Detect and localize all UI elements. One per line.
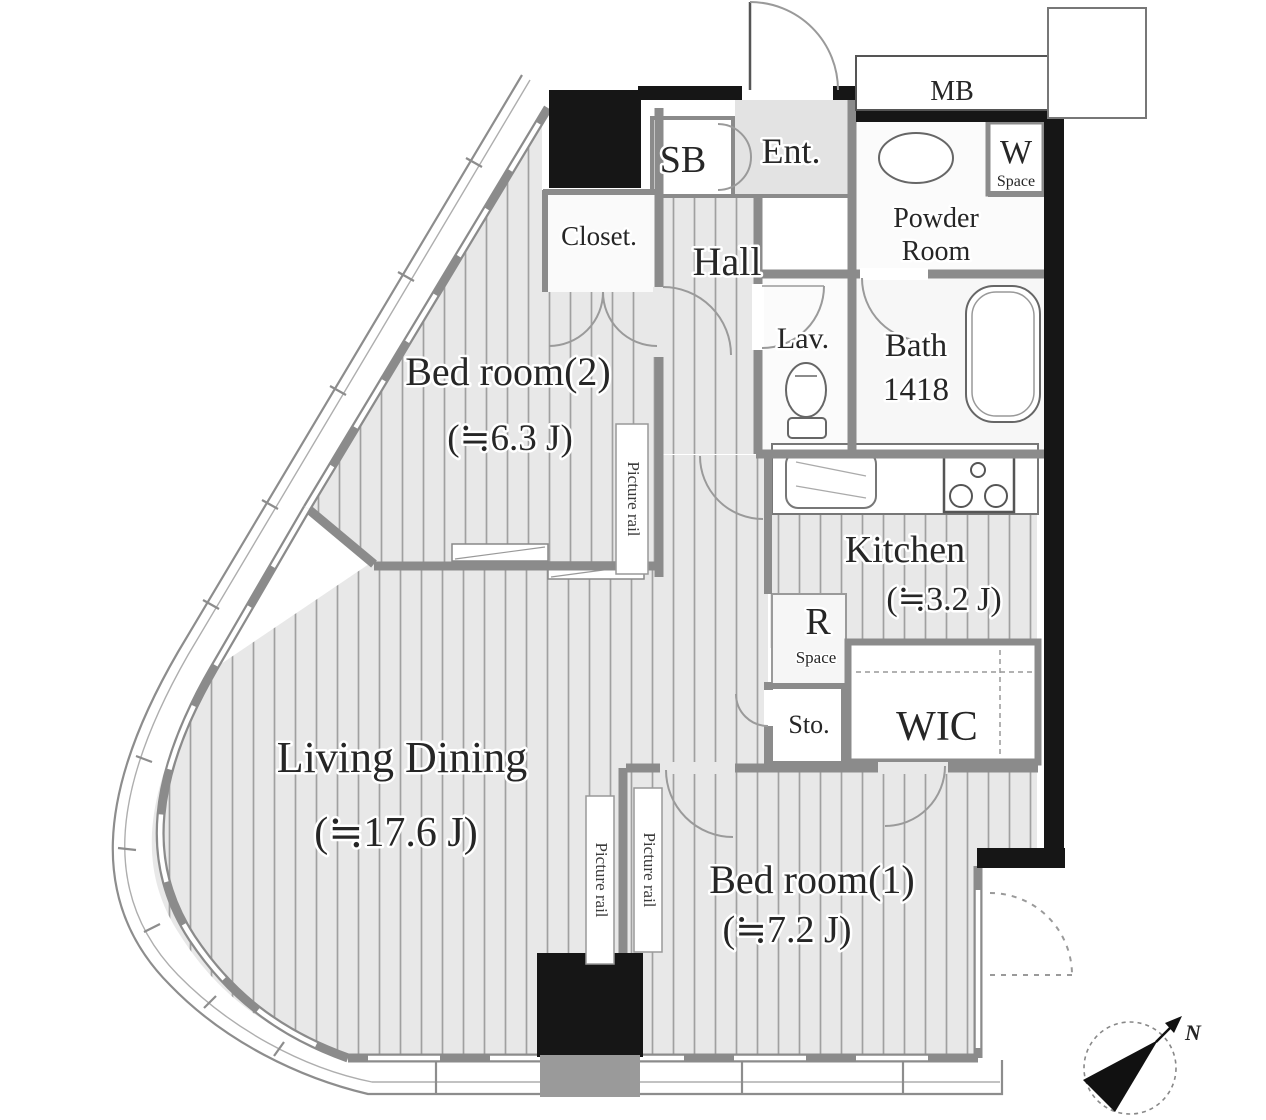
label-wic: WIC (896, 704, 978, 750)
bathtub-icon (966, 286, 1040, 422)
stove-icon (944, 454, 1014, 512)
label-hall: Hall (693, 239, 762, 284)
label-shoebox: SB (660, 139, 706, 181)
label-kitchen-size: (≒3.2 J) (886, 581, 1001, 618)
label-living-size: (≒17.6 J) (314, 810, 478, 856)
label-bath: Bath (885, 328, 948, 364)
compass-north-label: N (1184, 1020, 1202, 1045)
label-rspace-word: Space (796, 648, 837, 667)
kitchen-sink-icon (786, 452, 876, 508)
label-powder-line1: Powder (893, 203, 979, 234)
label-entrance: Ent. (762, 131, 821, 171)
label-closet: Closet. (561, 221, 637, 251)
sink-icon (879, 133, 953, 183)
floor-plan: Picture rail Picture rail Picture rail B… (0, 0, 1266, 1120)
label-wspace-word: Space (997, 173, 1035, 190)
neighbor-box (1048, 8, 1146, 118)
pillar-bottom (537, 953, 643, 1057)
label-living: Living Dining (277, 733, 528, 782)
label-bedroom2: Bed room(2) (405, 349, 611, 394)
floor-plan-page: Picture rail Picture rail Picture rail B… (0, 0, 1266, 1120)
label-powder-line2: Room (902, 236, 971, 267)
label-bath-size: 1418 (883, 372, 949, 408)
label-kitchen: Kitchen (845, 529, 965, 571)
toilet-icon (786, 363, 826, 438)
label-lav: Lav. (777, 322, 829, 355)
label-rspace-letter: R (805, 601, 831, 643)
picture-rail-label: Picture rail (624, 461, 643, 536)
label-storage: Sto. (788, 710, 829, 739)
pillar-top-left (549, 90, 641, 188)
room-hall-floor (663, 196, 758, 454)
label-bedroom1-size: (≒7.2 J) (723, 909, 852, 951)
label-meter-box: MB (930, 76, 974, 107)
label-bedroom1: Bed room(1) (709, 857, 915, 902)
label-bedroom2-size: (≒6.3 J) (447, 418, 573, 459)
picture-rail-label: Picture rail (640, 832, 659, 907)
label-wspace-letter: W (1000, 134, 1033, 171)
wall-right (1044, 96, 1064, 864)
picture-rail-label: Picture rail (592, 842, 611, 917)
